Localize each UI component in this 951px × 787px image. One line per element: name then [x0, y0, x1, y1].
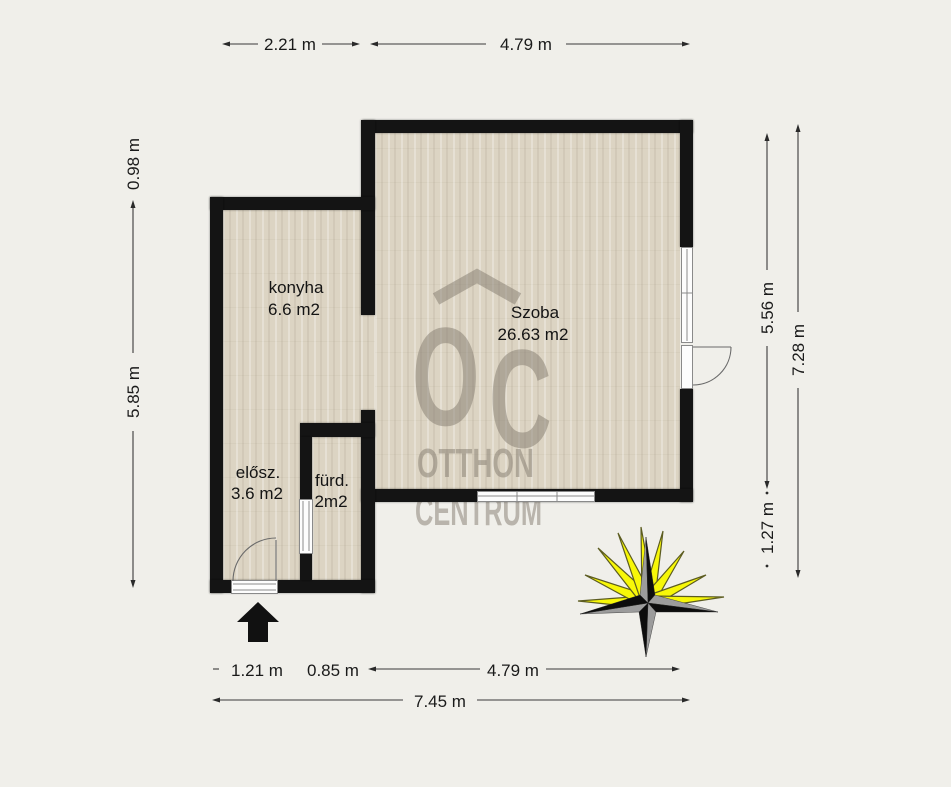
room-label-konyha: konyha	[269, 278, 324, 297]
dimension-top-1: 2.21 m	[222, 35, 360, 54]
dimension-bottom-745: 7.45 m	[212, 692, 690, 711]
annotation-overlay: 2.21 m 4.79 m 0.98 m 5.85 m 5.56 m	[0, 0, 951, 787]
dimension-right-728: 7.28 m	[789, 124, 808, 578]
dim-left-098: 0.98 m	[124, 138, 143, 190]
dimension-right-127: 1.27 m	[758, 492, 777, 568]
szoba-right-door-swing	[693, 347, 731, 385]
dim-bottom-121: 1.21 m	[231, 661, 283, 680]
room-area-furdo: 2m2	[314, 492, 347, 511]
dim-label: 2.21 m	[264, 35, 316, 54]
room-area-szoba: 26.63 m2	[498, 325, 569, 344]
dim-label: 4.79 m	[487, 661, 539, 680]
floorplan-canvas: O C OTTHON CENTRUM	[0, 0, 951, 787]
dimension-left-585: 5.85 m	[124, 200, 143, 588]
dim-bottom-085: 0.85 m	[307, 661, 359, 680]
dimension-right-556: 5.56 m	[758, 133, 777, 489]
room-label-furdo: fürd.	[315, 471, 349, 490]
dim-label: 5.56 m	[758, 282, 777, 334]
compass-rose-icon	[578, 527, 724, 657]
dim-label: 4.79 m	[500, 35, 552, 54]
dimension-top-2: 4.79 m	[370, 35, 690, 54]
dim-label: 5.85 m	[124, 366, 143, 418]
dim-label: 7.45 m	[414, 692, 466, 711]
entrance-door-swing	[233, 538, 276, 581]
dim-label: 1.27 m	[758, 502, 777, 554]
room-label-elosz: elősz.	[236, 463, 280, 482]
entrance-arrow-icon	[237, 602, 279, 642]
dim-label: 7.28 m	[789, 324, 808, 376]
dimension-bottom-479: 4.79 m	[368, 661, 680, 680]
room-area-konyha: 6.6 m2	[268, 300, 320, 319]
room-area-elosz: 3.6 m2	[231, 484, 283, 503]
room-label-szoba: Szoba	[511, 303, 560, 322]
